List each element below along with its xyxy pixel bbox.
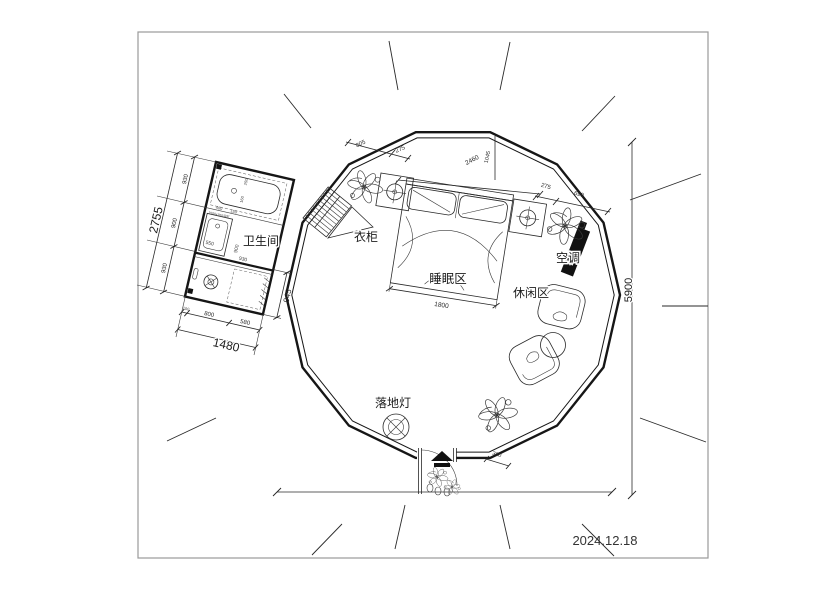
label-leisure-area: 休闲区 (513, 286, 549, 300)
floor-plan-page: 805 275 2460 1045 275 690 5900 (0, 0, 837, 592)
label-floor-lamp: 落地灯 (375, 396, 411, 410)
overall-height-dimension: 5900 (623, 138, 636, 499)
label-sleeping-area: 睡眠区 (429, 272, 467, 286)
date-stamp: 2024.12.18 (572, 533, 637, 548)
dim-2755: 2755 (146, 205, 166, 234)
dim-805: 805 (355, 139, 367, 149)
entry-plant (440, 475, 464, 499)
floor-plan-drawing: 805 275 2460 1045 275 690 5900 (0, 0, 837, 592)
label-air-conditioner: 空调 (556, 251, 580, 265)
dim-900: 900 (171, 217, 179, 229)
dim-5900: 5900 (623, 278, 635, 302)
tent-wall (286, 132, 620, 458)
dim-1480: 1480 (212, 335, 241, 355)
label-bathroom: 卫生间 (243, 234, 279, 248)
dim-800: 800 (203, 311, 215, 319)
dim-360: 360 (491, 451, 502, 459)
label-wardrobe: 衣柜 (354, 229, 378, 244)
